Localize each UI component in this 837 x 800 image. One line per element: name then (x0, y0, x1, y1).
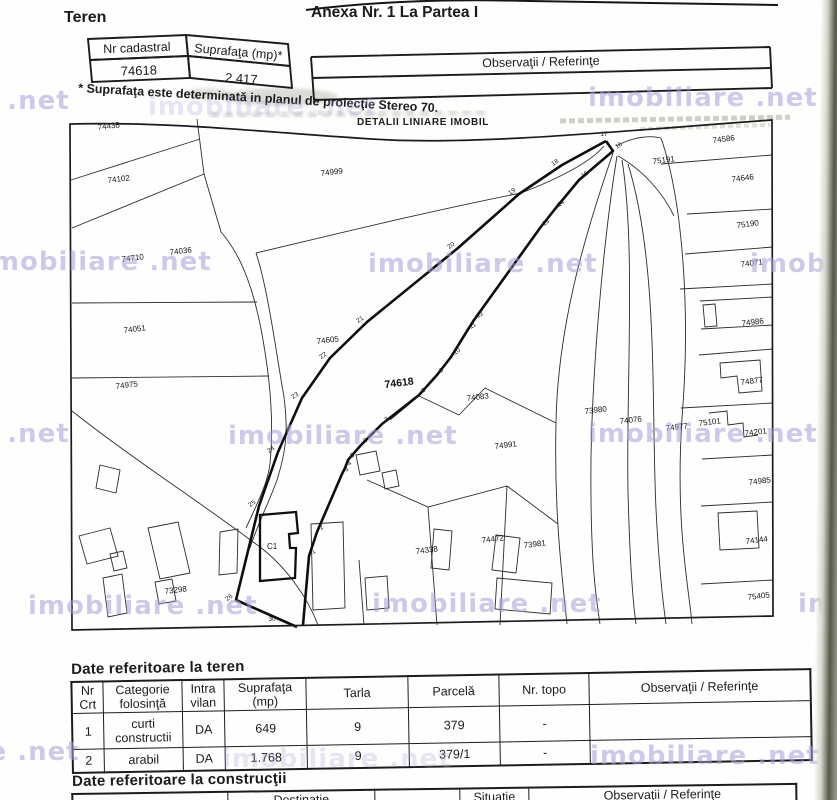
parcel-label-74975: 74975 (115, 379, 139, 391)
scanned-cadastral-document: imobiliare .net imobiliare .net imobilia… (0, 0, 837, 800)
vertex-label-16: 16 (614, 141, 624, 151)
teren-header-cell: Intra vilan (182, 679, 225, 711)
vertex-label-22: 22 (318, 351, 328, 361)
col-suprafata: Suprafaţa (mp)* (194, 41, 283, 63)
nr-cadastral-value: 74618 (121, 62, 158, 78)
col-observatii: Observaţii / Referinţe (482, 54, 600, 70)
parcel-label-74071: 74071 (740, 257, 764, 269)
map-stamp-smudges (210, 112, 790, 129)
vertex-label-4: 4 (346, 460, 353, 468)
teren-cell: 9 (307, 744, 409, 769)
suprafata-value: 2.417 (225, 70, 259, 87)
parcel-label-74586: 74586 (712, 133, 736, 145)
parcel-label-74986: 74986 (741, 316, 765, 328)
teren-cell: - (499, 704, 590, 742)
buildings (79, 304, 762, 617)
parcel-labels: 7443874102740367471074051749757499974605… (97, 120, 772, 602)
teren-header-cell: Observaţii / Referinţe (589, 669, 811, 704)
scan-page-edge (797, 0, 837, 800)
col-nr-cadastral: Nr cadastral (103, 40, 171, 56)
teren-cell: - (500, 740, 590, 765)
vertex-label-1: 1 (310, 548, 317, 556)
teren-cell: DA (182, 711, 225, 748)
parcel-label-75405: 75405 (747, 590, 771, 602)
parcel-label-73981: 73981 (523, 538, 547, 550)
parcel-label-74438: 74438 (97, 120, 121, 132)
teren-cell: 2 (73, 749, 105, 773)
section-title: Teren (64, 9, 106, 26)
watermark: imobiliare .net (0, 737, 80, 767)
parcel-label-74977: 74977 (665, 421, 689, 433)
parcel-label-74076: 74076 (619, 414, 643, 426)
parcel-label-74618: 74618 (384, 375, 415, 390)
constructii-header-cell: Observaţii / Referinţe (529, 784, 797, 800)
teren-header-cell: Parcelă (408, 675, 500, 708)
vertex-label-23: 23 (290, 391, 300, 401)
parcel-label-74991: 74991 (494, 439, 518, 451)
vertex-label-26: 26 (224, 593, 234, 603)
cadastral-map: C1 7443874102740367471074051749757499974… (60, 108, 790, 653)
teren-cell: DA (183, 747, 225, 771)
teren-cell (590, 737, 812, 764)
constructii-header-cell: Situaţie (460, 788, 530, 800)
teren-cell: 379/1 (409, 742, 500, 767)
parcel-label-74710: 74710 (121, 252, 145, 264)
parcel-label-75191: 75191 (652, 154, 676, 166)
map-title: DETALII LINIARE IMOBIL (357, 117, 489, 128)
parcel-label-74144: 74144 (745, 534, 769, 546)
teren-header-cell: Tarla (306, 676, 409, 709)
teren-header-cell: Nr. topo (499, 673, 590, 706)
parcel-label-75101: 75101 (698, 416, 722, 428)
parcel-label-74605: 74605 (316, 334, 340, 346)
parcel-label-73980: 73980 (584, 404, 608, 416)
teren-cell: 649 (224, 709, 307, 746)
parcel-label-73298: 73298 (164, 584, 188, 596)
parcel-label-74472: 74472 (481, 533, 505, 545)
vertex-label-2: 2 (318, 524, 325, 532)
teren-table: Nr CrtCategorie folosinţăIntra vilanSupr… (70, 668, 813, 773)
parcel-label-74877: 74877 (740, 375, 764, 387)
parcel-label-74036: 74036 (169, 245, 193, 257)
parcel-label-74338: 74338 (415, 544, 439, 556)
teren-header-cell: Categorie folosinţă (103, 680, 183, 713)
parcel-label-74985: 74985 (748, 475, 772, 487)
teren-cell: 379 (408, 706, 500, 744)
teren-header-cell: Suprafaţa (mp) (224, 678, 307, 711)
constructii-header-cell (375, 789, 461, 800)
teren-cell (589, 701, 811, 741)
teren-header-cell: Nr Crt (71, 681, 103, 713)
parcel-label-74999: 74999 (320, 166, 344, 178)
parcel-label-74201: 74201 (744, 426, 768, 438)
constructii-header-cell: Destinaţie (228, 790, 376, 800)
constructii-header-cell (72, 792, 228, 800)
teren-cell: 1 (72, 713, 104, 750)
vertex-label-30: 30 (268, 616, 276, 623)
teren-section: Date referitoare la teren Nr CrtCategori… (70, 648, 813, 773)
parcel-label-74051: 74051 (123, 323, 147, 335)
document-header-area: Teren Anexa Nr. 1 La Partea I Nr cadastr… (0, 0, 837, 120)
teren-cell: 9 (306, 708, 409, 746)
parcel-label-75190: 75190 (736, 218, 760, 230)
teren-cell: 1.768 (225, 745, 307, 769)
parcel-label-74083: 74083 (466, 391, 490, 403)
parcel-label-74102: 74102 (107, 173, 131, 185)
vertex-label-24: 24 (266, 445, 276, 455)
teren-cell: curti constructii (103, 712, 183, 749)
building-c1-outline (260, 512, 298, 581)
building-c1-label: C1 (267, 542, 278, 551)
teren-cell: arabil (104, 748, 183, 772)
parcel-label-74646: 74646 (731, 172, 755, 184)
annex-title: Anexa Nr. 1 La Partea I (311, 4, 478, 21)
